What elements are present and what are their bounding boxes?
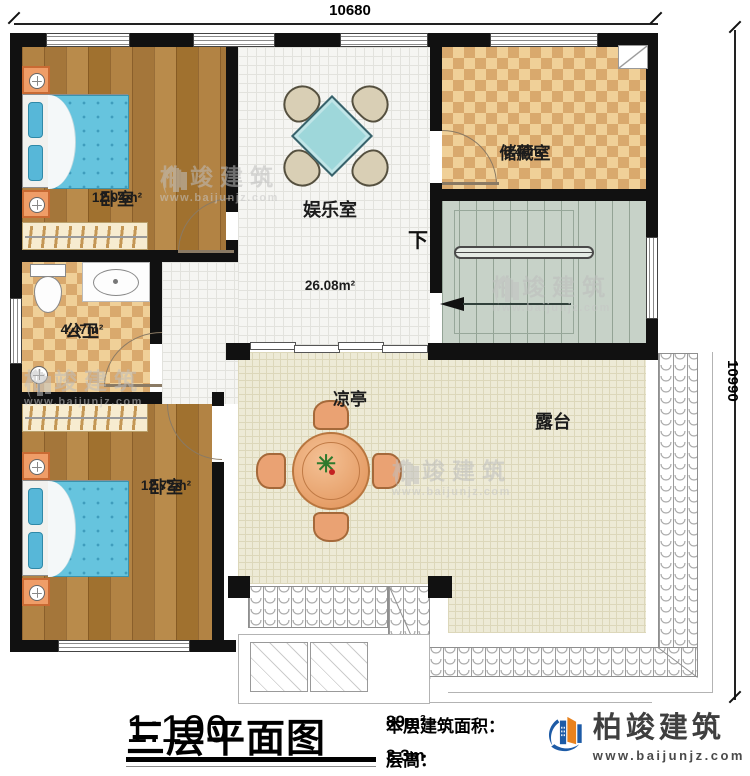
bed bbox=[22, 94, 128, 188]
title-underline-thick bbox=[126, 757, 376, 762]
wall bbox=[430, 47, 442, 131]
round-table: ✳ bbox=[292, 432, 370, 510]
stair-direction-arrow bbox=[440, 297, 464, 311]
sink-counter bbox=[82, 262, 150, 302]
sliding-door bbox=[250, 342, 428, 354]
bed bbox=[22, 480, 128, 576]
stair-handrail bbox=[454, 246, 594, 259]
window bbox=[646, 237, 658, 319]
room-area-entertainment: 26.08m² bbox=[286, 278, 374, 293]
pavilion-pillar bbox=[228, 576, 250, 598]
nightstand bbox=[22, 452, 50, 480]
wall bbox=[428, 343, 658, 360]
window bbox=[58, 640, 190, 652]
room-label-entertainment: 娱乐室 bbox=[286, 200, 374, 220]
nightstand bbox=[22, 190, 50, 218]
corridor-floor bbox=[162, 262, 238, 404]
door-leaf bbox=[178, 250, 234, 253]
toilet bbox=[30, 264, 66, 314]
floor-plan-canvas: ✳ 卧室 12.04m² bbox=[0, 0, 750, 776]
wall bbox=[430, 189, 658, 201]
brand-logo: 柏竣建筑 www.baijunjz.com bbox=[545, 698, 745, 768]
door-leaf bbox=[442, 182, 499, 185]
dimension-top: 10680 bbox=[310, 2, 390, 19]
roof-tiles-bottom bbox=[428, 647, 698, 677]
nightstand bbox=[22, 66, 50, 94]
pavilion-pillar bbox=[226, 343, 250, 360]
brand-watermark-icon bbox=[24, 367, 54, 403]
wall bbox=[212, 462, 224, 652]
watermark: 柏竣建筑 www.baijunjz.com bbox=[492, 268, 612, 314]
chair bbox=[256, 453, 286, 489]
window bbox=[46, 33, 130, 47]
chair bbox=[313, 512, 349, 542]
dimension-line-top bbox=[14, 23, 658, 25]
wall bbox=[430, 201, 442, 293]
window bbox=[193, 33, 275, 47]
wardrobe bbox=[22, 222, 148, 250]
brand-watermark-icon bbox=[160, 163, 190, 199]
brand-logo-icon bbox=[545, 702, 585, 764]
watermark: 柏竣建筑 www.baijunjz.com bbox=[392, 452, 512, 498]
skylight-pane bbox=[310, 642, 368, 692]
stair-down-label: 下 bbox=[408, 224, 428, 253]
brand-watermark-icon bbox=[392, 457, 422, 493]
skylight-pane bbox=[250, 642, 308, 692]
roof-tiles-pavilion bbox=[248, 586, 388, 628]
brand-watermark-icon bbox=[492, 273, 522, 309]
window bbox=[10, 298, 22, 364]
pavilion-pillar bbox=[428, 576, 452, 598]
title-underline-thin bbox=[126, 766, 376, 767]
window bbox=[490, 33, 598, 47]
nightstand bbox=[22, 578, 50, 606]
roof-tiles-right bbox=[658, 353, 698, 677]
flue-notch bbox=[618, 45, 648, 69]
watermark: 柏竣建筑 www.baijunjz.com bbox=[160, 158, 280, 204]
watermark: 柏竣建筑 www.baijunjz.com bbox=[24, 362, 144, 408]
dimension-right: 10990 bbox=[724, 360, 741, 402]
window bbox=[340, 33, 428, 47]
